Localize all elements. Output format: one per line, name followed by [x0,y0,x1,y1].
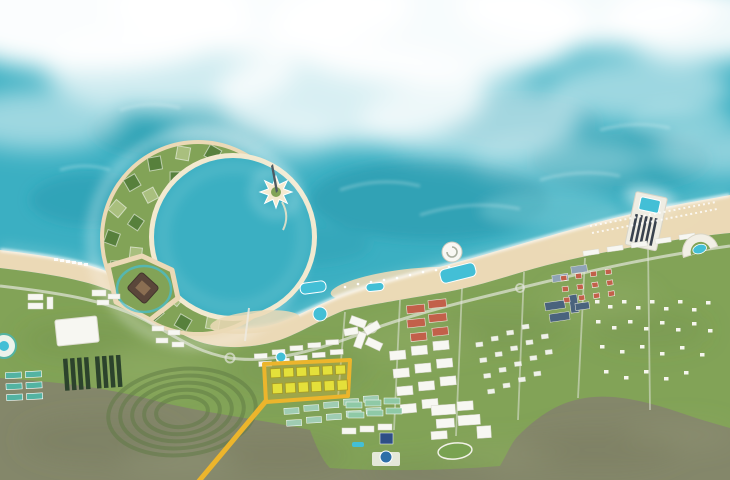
mall-building [55,316,99,346]
masterplan-map[interactable] [0,0,730,480]
dark-blue-building [380,433,393,444]
left-circle-feature [0,334,16,358]
campus-pool [352,442,364,447]
dome-building [372,451,400,466]
